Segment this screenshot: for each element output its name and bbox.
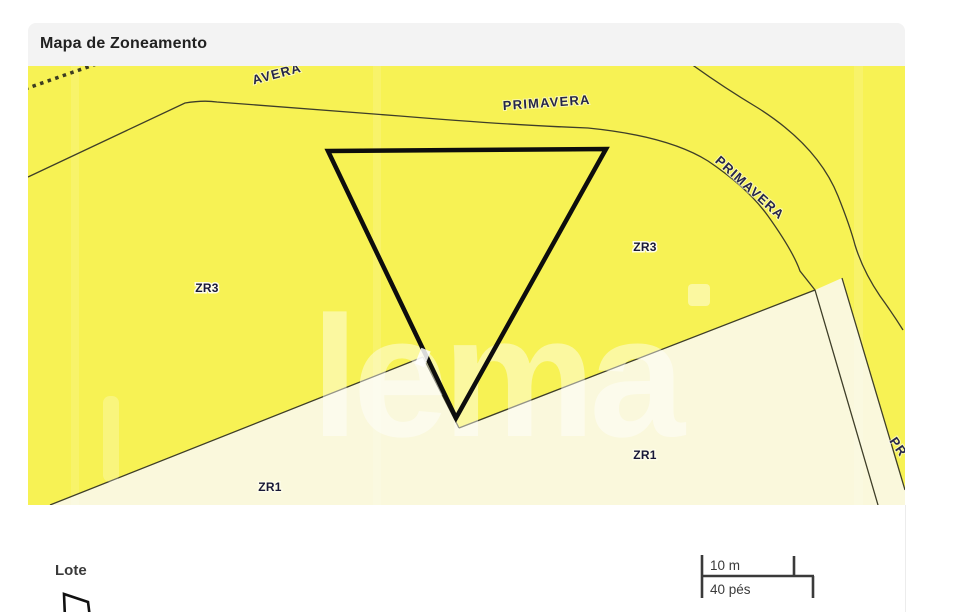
lote-label: Lote	[55, 562, 87, 579]
zone-label-zr1-right: ZR1	[633, 448, 657, 462]
scale-imperial-label: 40 pés	[710, 582, 751, 597]
watermark-dot	[688, 284, 710, 306]
lote-polygon-shape	[64, 594, 90, 612]
card-title: Mapa de Zoneamento	[40, 35, 207, 53]
page: Mapa de Zoneamento	[0, 0, 960, 612]
scale-metric-label: 10 m	[710, 558, 740, 573]
zone-label-zr3-left: ZR3	[195, 281, 219, 295]
zoning-map-card: Mapa de Zoneamento	[28, 23, 905, 612]
watermark-fragment	[103, 396, 119, 482]
legend: Lote 10 m 40 pés	[28, 505, 906, 612]
card-header: Mapa de Zoneamento	[28, 23, 905, 66]
zoning-map: lema AVERA PRIMAVERA PRIMAVERA PR	[28, 66, 905, 505]
scale-bar: 10 m 40 pés	[694, 549, 829, 604]
zoning-map-canvas: lema AVERA PRIMAVERA PRIMAVERA PR	[28, 66, 905, 505]
lote-polygon-icon	[61, 589, 95, 612]
watermark-text: lema	[311, 281, 686, 473]
zone-label-zr1-left: ZR1	[258, 480, 282, 494]
zone-label-zr3-right: ZR3	[633, 240, 657, 254]
